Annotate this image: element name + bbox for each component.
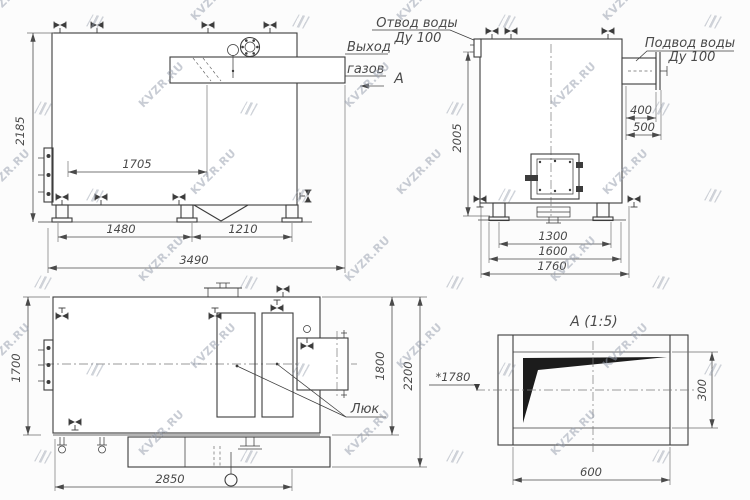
gas-outlet-label: Выход газов [345, 40, 391, 77]
plan-nozzle [57, 437, 67, 453]
valve-icon [91, 22, 103, 34]
dim-plan-1700: 1700 [9, 353, 23, 382]
water-inlet-duct [622, 52, 667, 90]
water-outlet-text-1: Отвод воды [376, 16, 457, 31]
valve-icon [505, 28, 517, 40]
dim-side-400: 400 [630, 103, 652, 117]
front-view [38, 22, 345, 223]
valve-icon [486, 28, 498, 40]
gas-duct-plan [297, 330, 348, 398]
view-letter: А [393, 71, 404, 87]
valve-icon [264, 22, 276, 34]
dim-plan-1800: 1800 [373, 351, 387, 380]
dim-side-1760: 1760 [537, 259, 566, 273]
front-supports [38, 205, 312, 222]
water-inlet-text-1: Подвод воды [645, 36, 735, 51]
dim-detail-600: 600 [580, 465, 602, 479]
gas-duct-front [170, 57, 345, 83]
valve-icon [300, 190, 312, 202]
drain-port [225, 474, 237, 486]
dim-front-height: 2185 [13, 116, 27, 145]
dim-detail-1780: *1780 [435, 370, 470, 384]
plan-view: Люк [38, 283, 386, 486]
detail-title: А (1:5) [569, 314, 617, 330]
gas-outlet-text-2: газов [347, 62, 384, 77]
gas-outlet-text-1: Выход [347, 40, 391, 55]
dim-front-1480: 1480 [106, 222, 135, 236]
valve-icon [202, 22, 214, 34]
side-supports [478, 203, 626, 223]
dim-front-1705: 1705 [122, 157, 151, 171]
dim-side-1300: 1300 [538, 229, 567, 243]
valve-icon [628, 196, 640, 208]
dim-front-3490: 3490 [179, 253, 208, 267]
boiler-body-plan [53, 297, 320, 433]
drawing-sheet: 2185 1705 1480 1210 3490 Выход газов А О… [0, 0, 750, 500]
dim-plan-2200: 2200 [401, 361, 415, 390]
front-door [38, 148, 53, 202]
dim-front-1210: 1210 [228, 222, 257, 236]
valve-icon [602, 28, 614, 40]
door-hinge [576, 162, 583, 168]
valve-icon [277, 286, 289, 298]
door-handle [525, 175, 538, 181]
dim-side-height: 2005 [450, 123, 464, 152]
detail-view-a: А (1:5) *1780 300 600 [429, 314, 718, 485]
water-outlet-text-2: Ду 100 [394, 31, 442, 46]
valve-icon [54, 22, 66, 34]
door-hinge [576, 186, 583, 192]
dim-side-500: 500 [633, 120, 655, 134]
dim-plan-2850: 2850 [155, 472, 184, 486]
dim-detail-300: 300 [695, 379, 709, 401]
drawing-canvas: 2185 1705 1480 1210 3490 Выход газов А О… [0, 0, 750, 500]
water-outlet-flange [470, 39, 481, 57]
plan-nozzle [97, 437, 107, 453]
plan-top-flange [204, 283, 242, 297]
hatch-text: Люк [350, 402, 380, 417]
dim-side-1600: 1600 [538, 244, 567, 258]
plan-door [38, 340, 53, 390]
water-inlet-text-2: Ду 100 [668, 50, 716, 65]
